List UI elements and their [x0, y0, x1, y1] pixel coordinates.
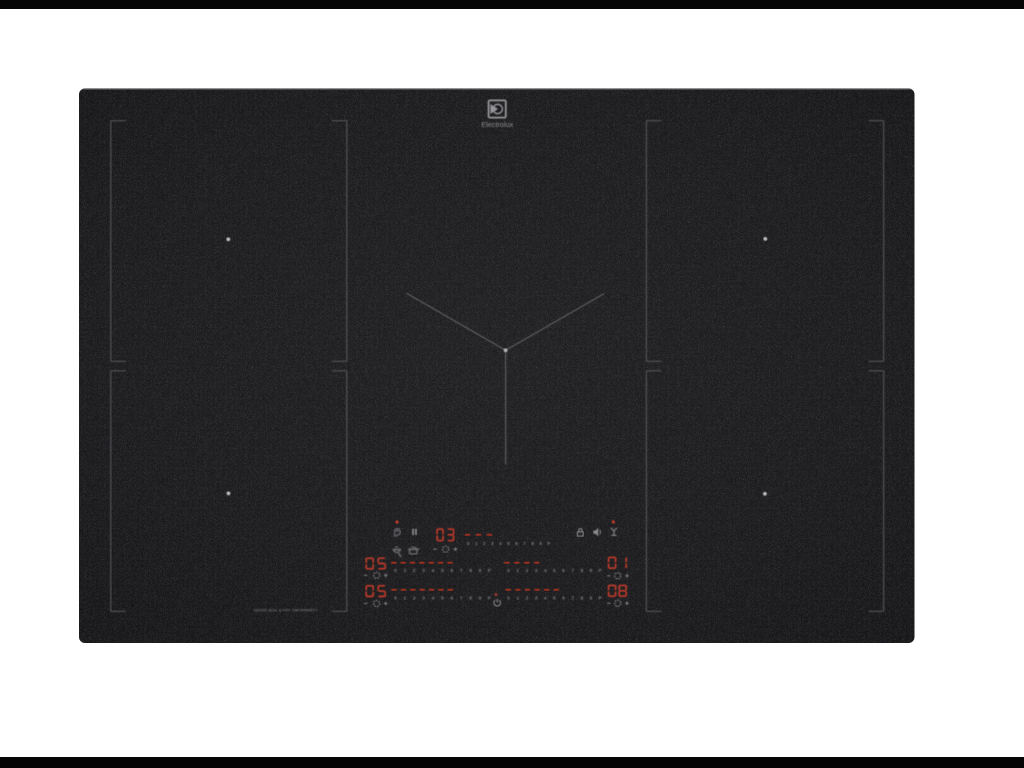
- svg-text:Electrolux: Electrolux: [481, 120, 513, 129]
- svg-text:SENSE BOIL & FRY SAFWRMATT: SENSE BOIL & FRY SAFWRMATT: [254, 608, 318, 613]
